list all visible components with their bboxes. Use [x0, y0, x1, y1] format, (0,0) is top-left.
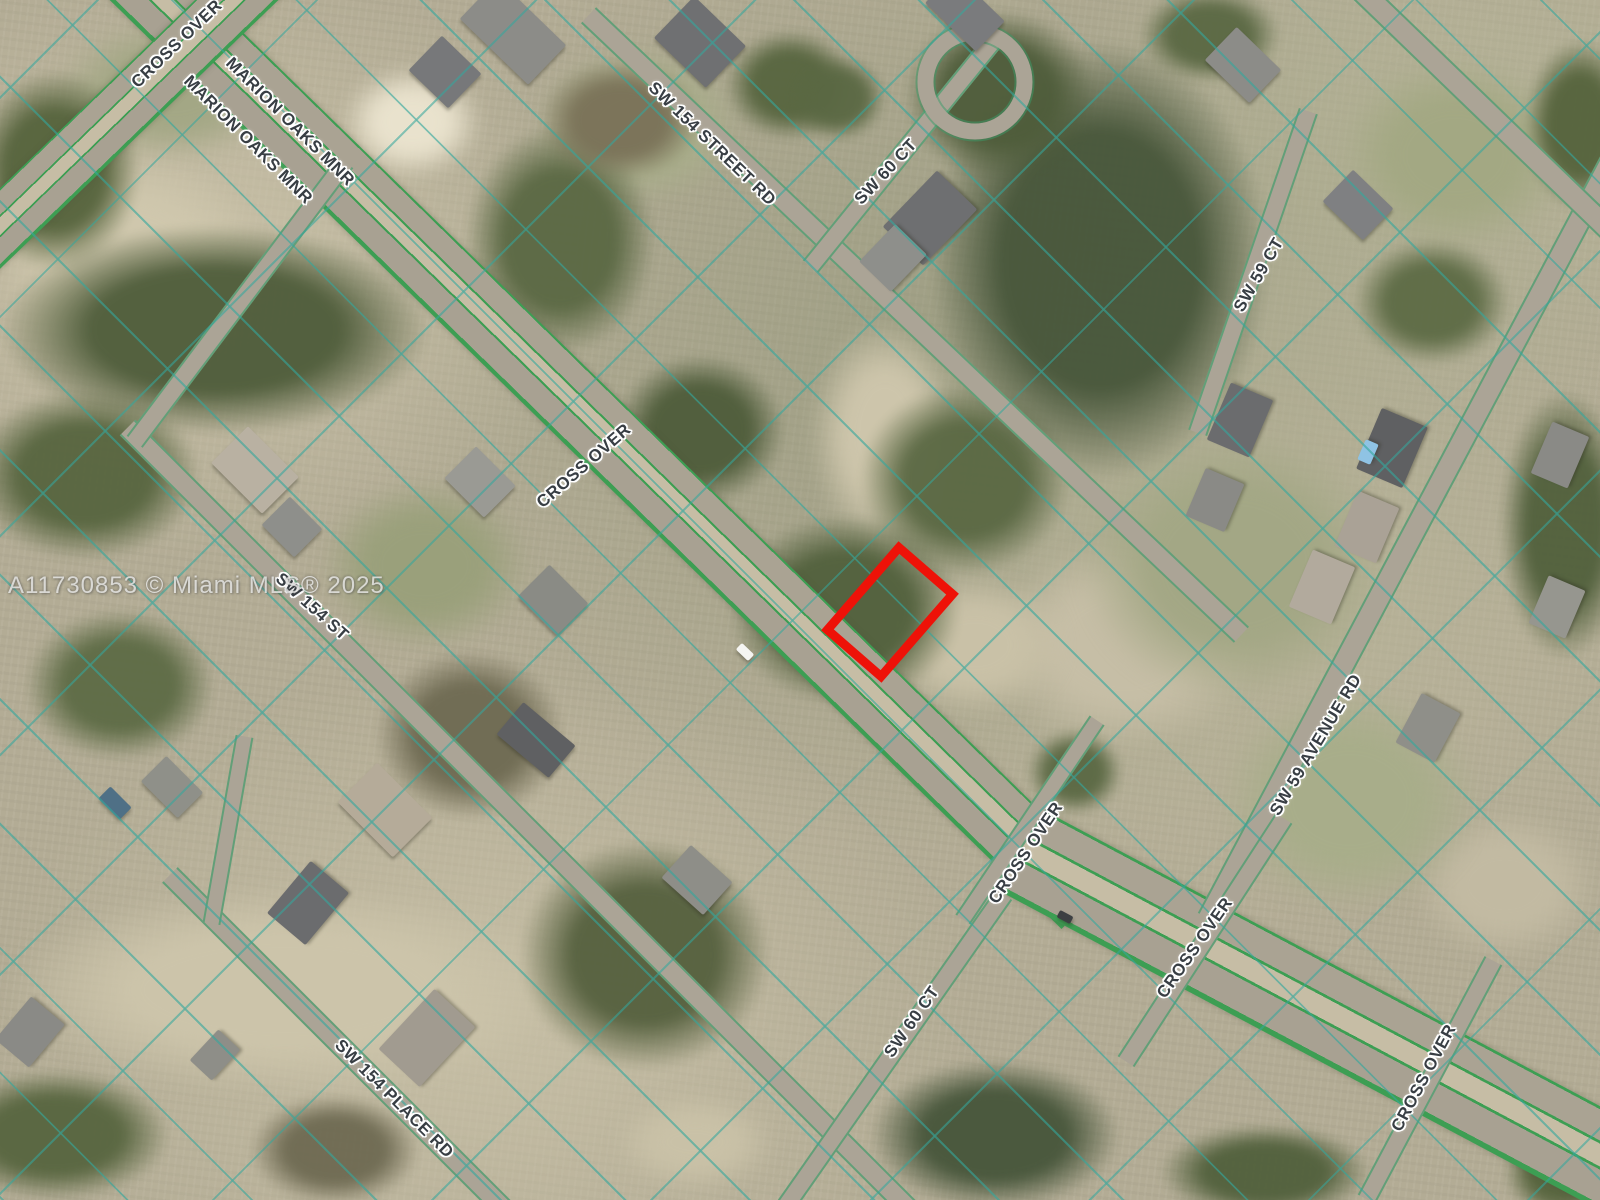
mls-watermark: A11730853 © Miami MLS® 2025 [8, 572, 385, 600]
street-label: CROSS OVER [1387, 1021, 1460, 1135]
street-label: SW 59 AVENUE RD [1266, 671, 1366, 820]
street-label: SW 60 CT [851, 135, 922, 209]
aerial-map-photo[interactable]: CROSS OVERMARION OAKS MNRMARION OAKS MNR… [0, 0, 1600, 1200]
street-label: SW 154 STREET RD [644, 78, 780, 210]
street-label: CROSS OVER [533, 420, 635, 513]
street-label: SW 60 CT [880, 983, 944, 1062]
street-label: SW 154 PLACE RD [331, 1036, 458, 1163]
street-label: CROSS OVER [127, 0, 226, 92]
street-labels-layer: CROSS OVERMARION OAKS MNRMARION OAKS MNR… [0, 0, 1600, 1200]
street-label: SW 59 CT [1230, 234, 1289, 315]
street-label: CROSS OVER [1153, 894, 1237, 1002]
street-label: CROSS OVER [985, 798, 1068, 907]
